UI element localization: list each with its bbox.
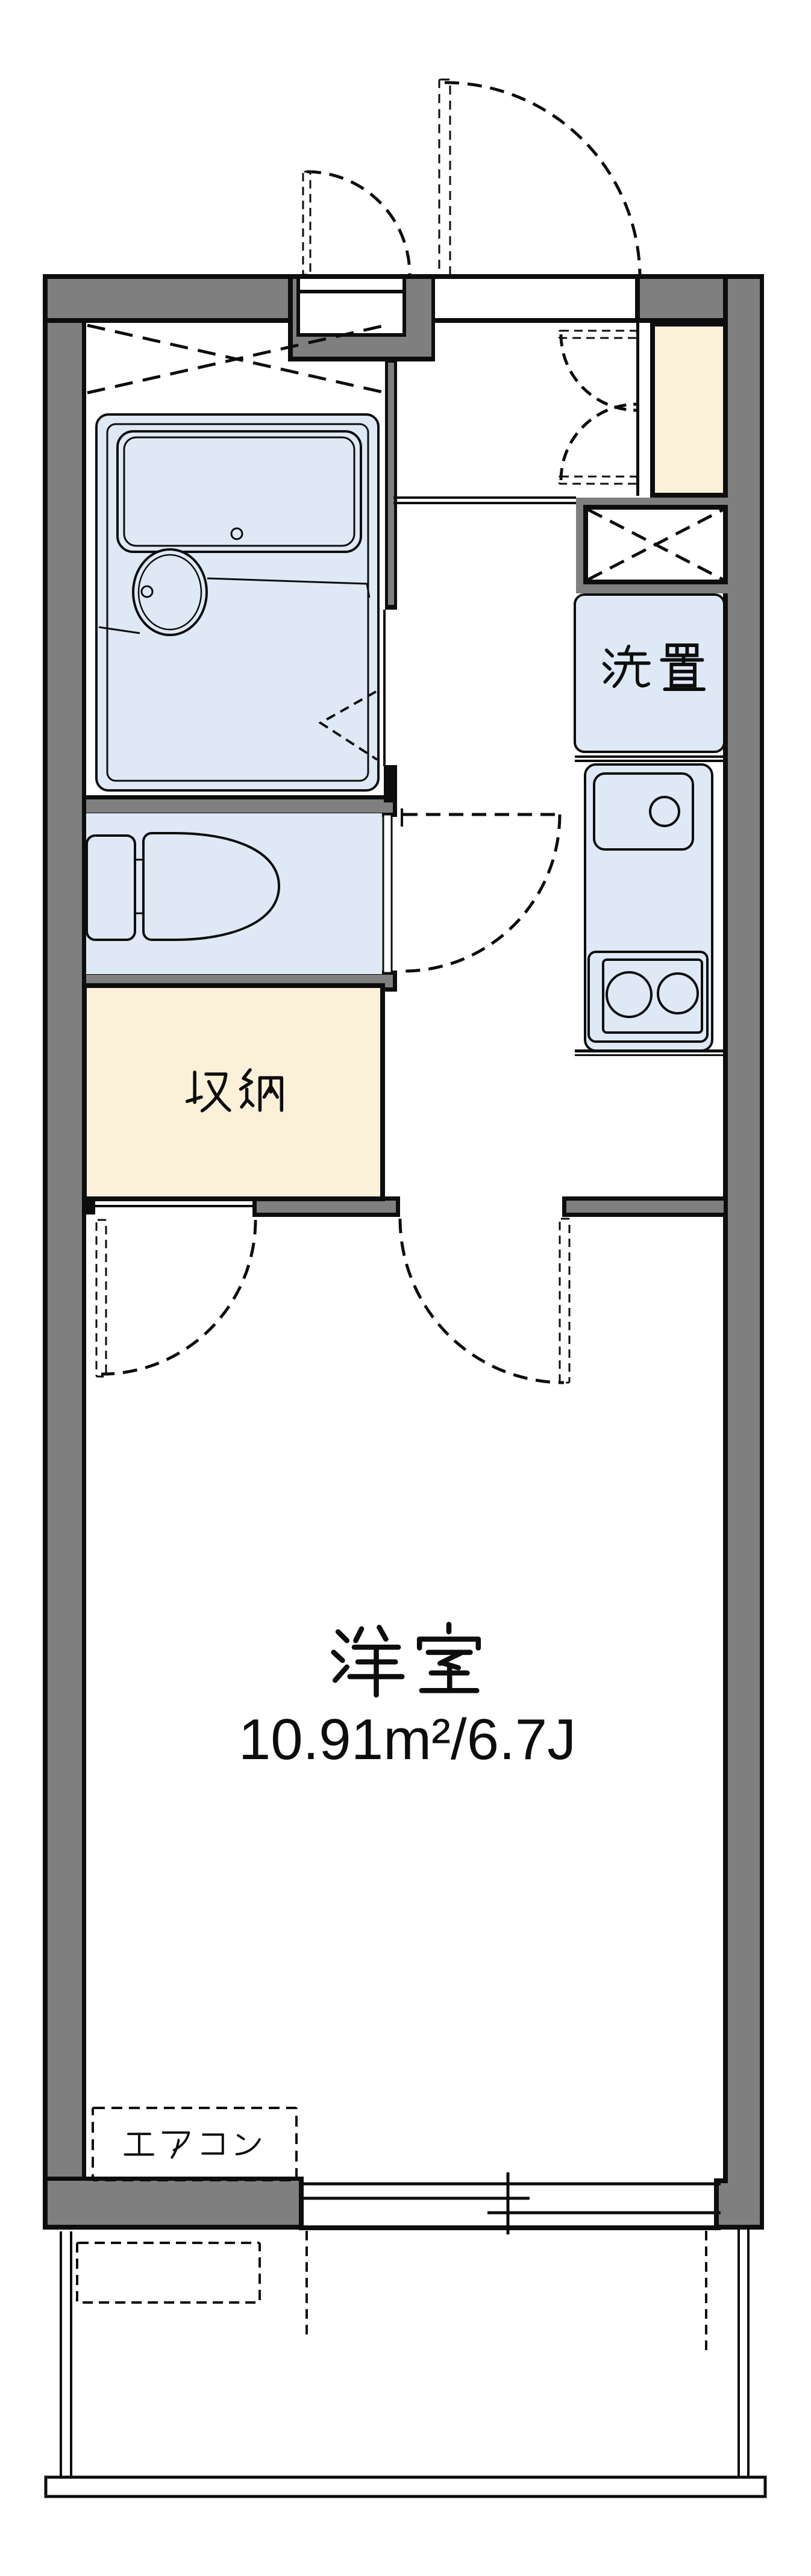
- svg-text:10.91m²/6.7J: 10.91m²/6.7J: [239, 1707, 576, 1772]
